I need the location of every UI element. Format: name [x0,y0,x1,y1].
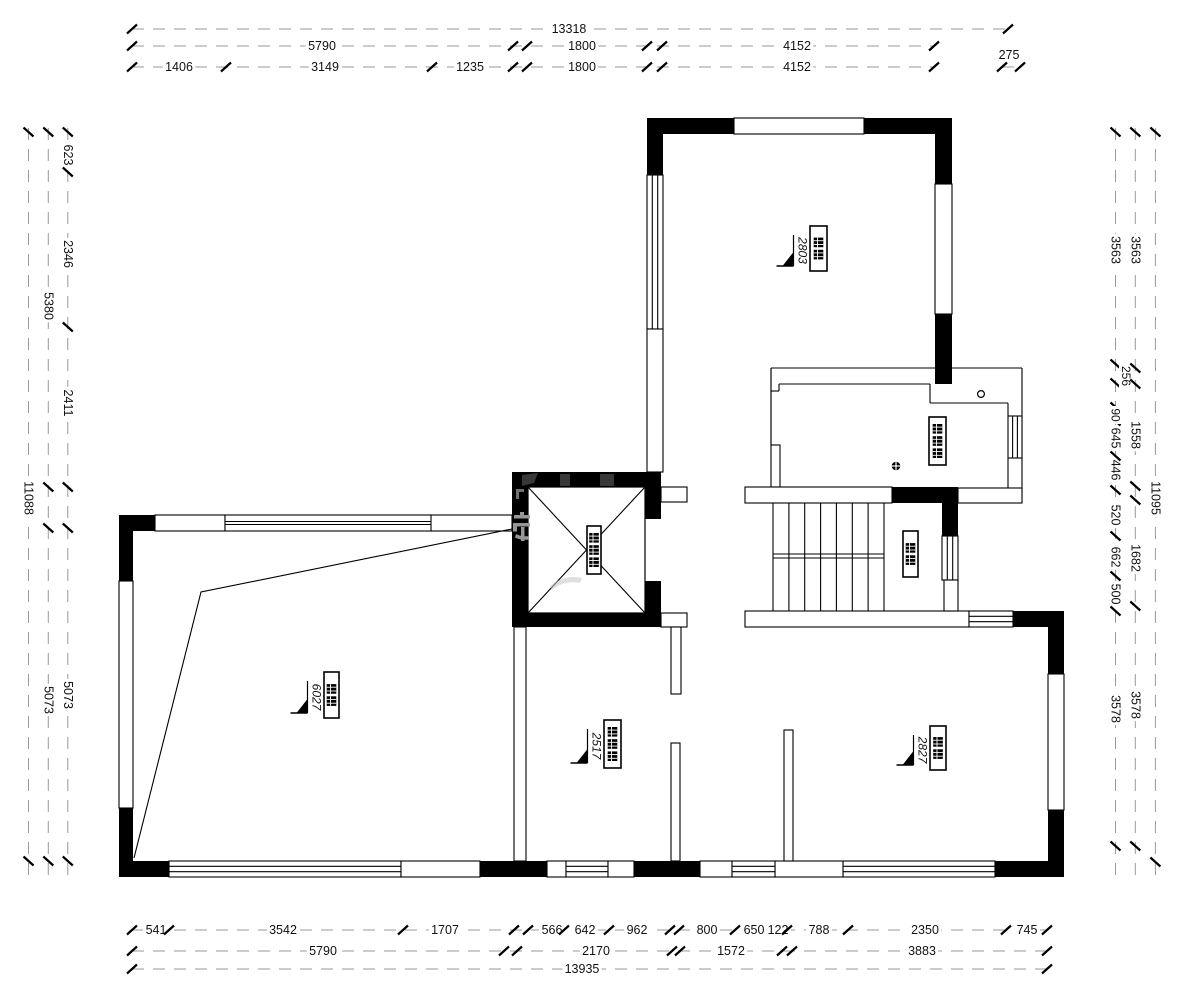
svg-text:1235: 1235 [456,60,484,74]
svg-text:2517: 2517 [590,732,604,761]
svg-text:11095: 11095 [1148,481,1162,515]
svg-text:541: 541 [146,923,167,937]
svg-text:1558: 1558 [1128,421,1142,449]
svg-text:446: 446 [1109,460,1123,481]
svg-text:520: 520 [1109,505,1123,526]
svg-text:2350: 2350 [911,923,939,937]
svg-text:2411: 2411 [61,390,75,417]
svg-text:1572: 1572 [717,944,745,958]
svg-text:3578: 3578 [1128,691,1142,719]
svg-text:1406: 1406 [165,60,193,74]
svg-text:566: 566 [542,923,563,937]
svg-text:3883: 3883 [908,944,936,958]
svg-text:13935: 13935 [565,962,600,976]
svg-text:645: 645 [1109,428,1123,449]
svg-text:13318: 13318 [552,22,587,36]
svg-text:745: 745 [1017,923,1038,937]
svg-text:2346: 2346 [61,240,75,268]
svg-text:662: 662 [1109,547,1123,568]
svg-text:256: 256 [1119,366,1133,386]
svg-text:122: 122 [768,923,789,937]
svg-text:1800: 1800 [568,39,596,53]
svg-text:5073: 5073 [41,686,55,714]
svg-text:788: 788 [809,923,830,937]
svg-text:642: 642 [575,923,596,937]
svg-text:3563: 3563 [1109,236,1123,264]
svg-text:3542: 3542 [269,923,297,937]
svg-text:800: 800 [697,923,718,937]
svg-text:650: 650 [744,923,765,937]
svg-text:5790: 5790 [309,944,337,958]
svg-text:3563: 3563 [1128,236,1142,264]
svg-text:5073: 5073 [61,681,75,709]
svg-text:3149: 3149 [311,60,339,74]
svg-text:2170: 2170 [582,944,610,958]
svg-text:90: 90 [1109,408,1123,422]
svg-text:1707: 1707 [431,923,459,937]
svg-text:962: 962 [627,923,648,937]
svg-text:275: 275 [999,48,1020,62]
svg-text:623: 623 [61,145,75,166]
svg-text:500: 500 [1109,584,1123,605]
svg-text:6027: 6027 [310,684,324,712]
svg-text:5380: 5380 [41,292,55,320]
svg-text:2803: 2803 [796,236,810,264]
svg-text:1682: 1682 [1128,544,1142,572]
svg-text:2827: 2827 [916,736,930,765]
svg-text:3578: 3578 [1109,695,1123,723]
svg-text:1800: 1800 [568,60,596,74]
svg-text:5790: 5790 [308,39,336,53]
svg-text:4152: 4152 [783,39,811,53]
svg-text:4152: 4152 [783,60,811,74]
svg-text:11088: 11088 [22,481,36,515]
